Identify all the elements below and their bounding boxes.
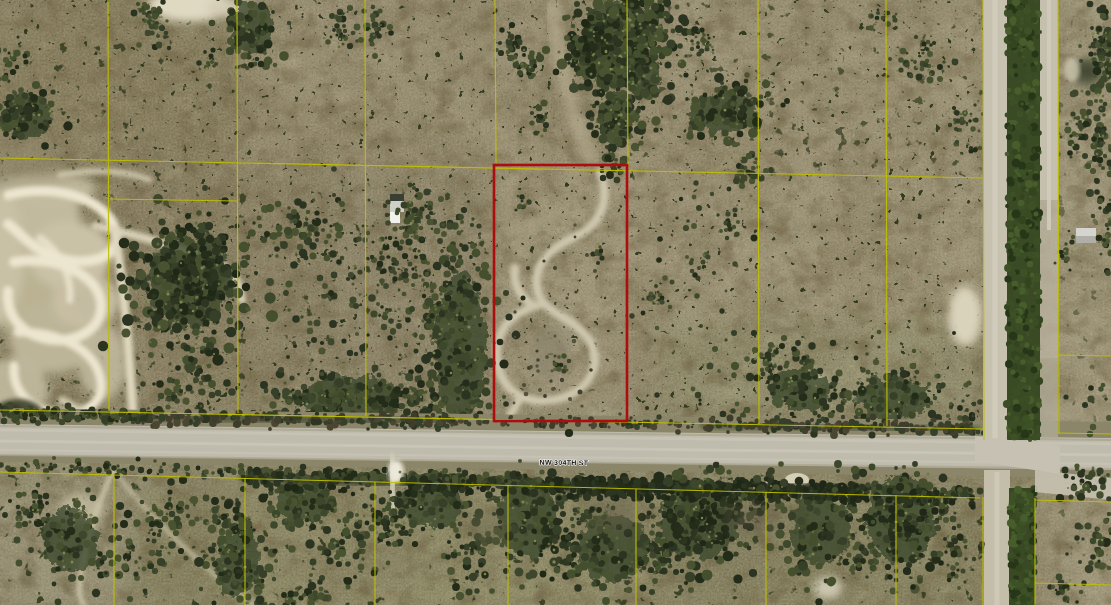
svg-text:NW 304TH ST: NW 304TH ST [540,459,589,467]
